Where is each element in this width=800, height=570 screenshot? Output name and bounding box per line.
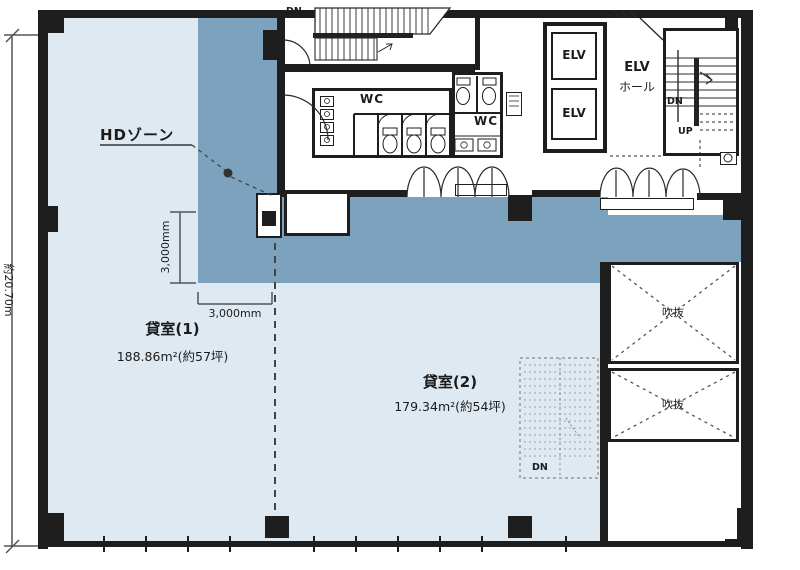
elv-hall-label-line1: ELV — [610, 60, 664, 75]
room1-name: 貸室(1) — [115, 318, 230, 339]
door-arcs-right — [600, 168, 700, 197]
column-top-right — [725, 14, 738, 29]
elv1-label: ELV — [551, 48, 597, 62]
total-height-dimension: 約20.70m — [3, 240, 17, 340]
shaft-below-voids — [610, 446, 737, 539]
column-corridor-top — [263, 30, 283, 60]
room2-name: 貸室(2) — [400, 371, 500, 392]
column-left-mid — [38, 206, 58, 232]
elv2-label: ELV — [551, 106, 597, 120]
void2-label: 吹抜 — [648, 396, 698, 412]
wall-bottom-left — [38, 541, 608, 547]
wall-bottom-right — [600, 541, 753, 547]
top-stair-dn-label: DN — [286, 6, 302, 17]
hall-sink-fixture — [720, 152, 737, 165]
urinal-3 — [320, 122, 334, 133]
door-leaf-right — [600, 198, 694, 210]
shelf-fixture — [506, 92, 522, 116]
room1-area: 188.86m²(約57坪) — [85, 346, 260, 365]
urinal-2 — [320, 109, 334, 120]
wall-corridor-north — [285, 64, 475, 72]
column-top-left — [38, 10, 64, 33]
wall-corridor-bottom-b — [532, 190, 600, 197]
main-stair-box — [663, 28, 739, 156]
future-stair-dn-label: DN — [532, 462, 548, 473]
urinal-4 — [320, 135, 334, 146]
pipe-shaft-1-block — [262, 211, 276, 226]
void1-label: 吹抜 — [648, 304, 698, 320]
room2-area: 179.34m²(約54坪) — [375, 396, 525, 415]
hd-zone-label: HDゾーン — [100, 124, 174, 145]
door-post-right — [723, 197, 741, 220]
wall-stair-lobby — [475, 10, 480, 70]
hd-zone-right-extension — [608, 215, 741, 262]
column-bottom-1 — [265, 516, 289, 538]
tenant-area-1-fill — [48, 17, 198, 283]
urinal-1 — [320, 96, 334, 107]
main-stair-up-label: UP — [678, 126, 693, 137]
pipe-shaft-2 — [284, 191, 350, 236]
wall-tenant-right — [600, 262, 608, 541]
main-stair-dn-label: DN — [667, 96, 683, 107]
wc1-label: WC — [360, 92, 384, 106]
wall-right — [741, 10, 753, 549]
elv-hall-label-line2: ホール — [608, 78, 666, 95]
column-bottom-left — [38, 513, 64, 543]
zone-depth-dimension-vertical: 3,000mm — [159, 197, 173, 297]
column-bottom-2 — [508, 516, 532, 538]
door-leaf-mid — [455, 184, 507, 196]
wall-left — [38, 10, 48, 549]
floor-plan: 約20.70m 3,000mm 3,000mm HDゾーン 貸室(1) 188.… — [0, 0, 800, 570]
door-post-mid — [508, 195, 532, 221]
wall-top — [38, 10, 753, 18]
wc2-label: WC — [474, 114, 498, 128]
